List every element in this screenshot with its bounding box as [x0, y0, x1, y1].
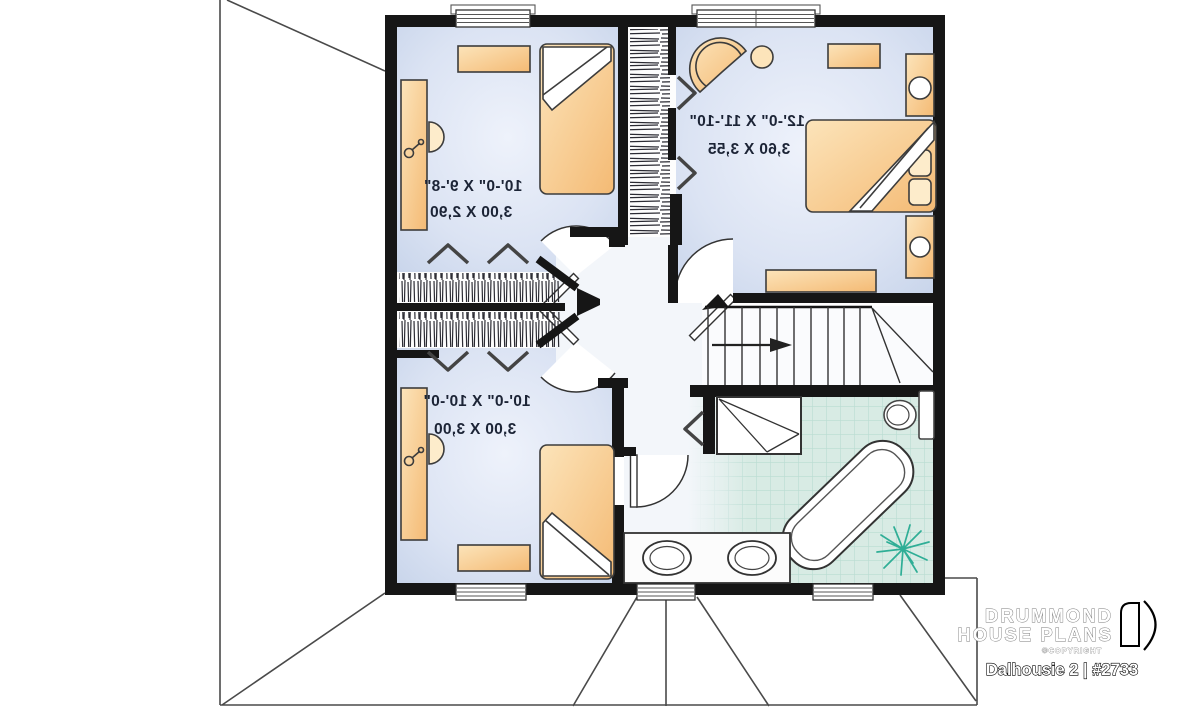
vanity-sinks — [624, 533, 790, 583]
window-bathroom-left — [637, 584, 695, 600]
logo-company-line1: DRUMMOND — [985, 605, 1113, 626]
dresser-bottom — [458, 545, 530, 571]
shower — [717, 397, 801, 454]
window-bedroom-top-left — [451, 5, 535, 27]
plan-model-number: Dalhousie 2 | #2733 — [986, 661, 1138, 679]
nightstand-top — [906, 54, 934, 116]
window-master-bedroom — [692, 5, 820, 27]
master-bedroom-imperial: 12'-0" X 11'-10" — [689, 113, 805, 130]
drummond-logo: DRUMMOND HOUSE PLANS ©COPYRIGHT Dalhousi… — [957, 601, 1155, 679]
floor-plan-drawing: 10'-0" X 9'-8" 3,00 X 2,90 12'-0" X 11'-… — [0, 0, 1200, 711]
twin-bed — [540, 44, 614, 194]
window-bedroom-bottom-left — [456, 584, 526, 600]
bedroom-top-left-metric: 3,00 X 2,90 — [430, 204, 513, 221]
twin-bed — [540, 445, 614, 579]
pillow — [909, 179, 931, 205]
dresser-top — [458, 46, 530, 72]
window-bathroom-right — [813, 584, 873, 600]
master-bedroom-metric: 3,60 X 3,55 — [708, 141, 791, 158]
bedroom-bottom-left-metric: 3,00 X 3,00 — [434, 421, 517, 438]
floor-plan-page: 10'-0" X 9'-8" 3,00 X 2,90 12'-0" X 11'-… — [0, 0, 1200, 711]
bedroom-top-left-imperial: 10'-0" X 9'-8" — [424, 178, 523, 195]
side-table — [751, 46, 773, 68]
dresser-top — [828, 44, 880, 68]
nightstand-bottom — [906, 216, 934, 278]
master-closet-hatch — [630, 29, 670, 235]
door-leaf — [631, 455, 638, 507]
logo-company-line2: HOUSE PLANS — [957, 624, 1113, 645]
dresser-bottom — [766, 270, 876, 292]
bedroom-bottom-left-imperial: 10'-0" X 10'-0" — [423, 393, 531, 410]
queen-bed — [806, 120, 936, 212]
closet-hatch-top — [399, 273, 561, 302]
logo-copyright: ©COPYRIGHT — [1042, 646, 1102, 655]
